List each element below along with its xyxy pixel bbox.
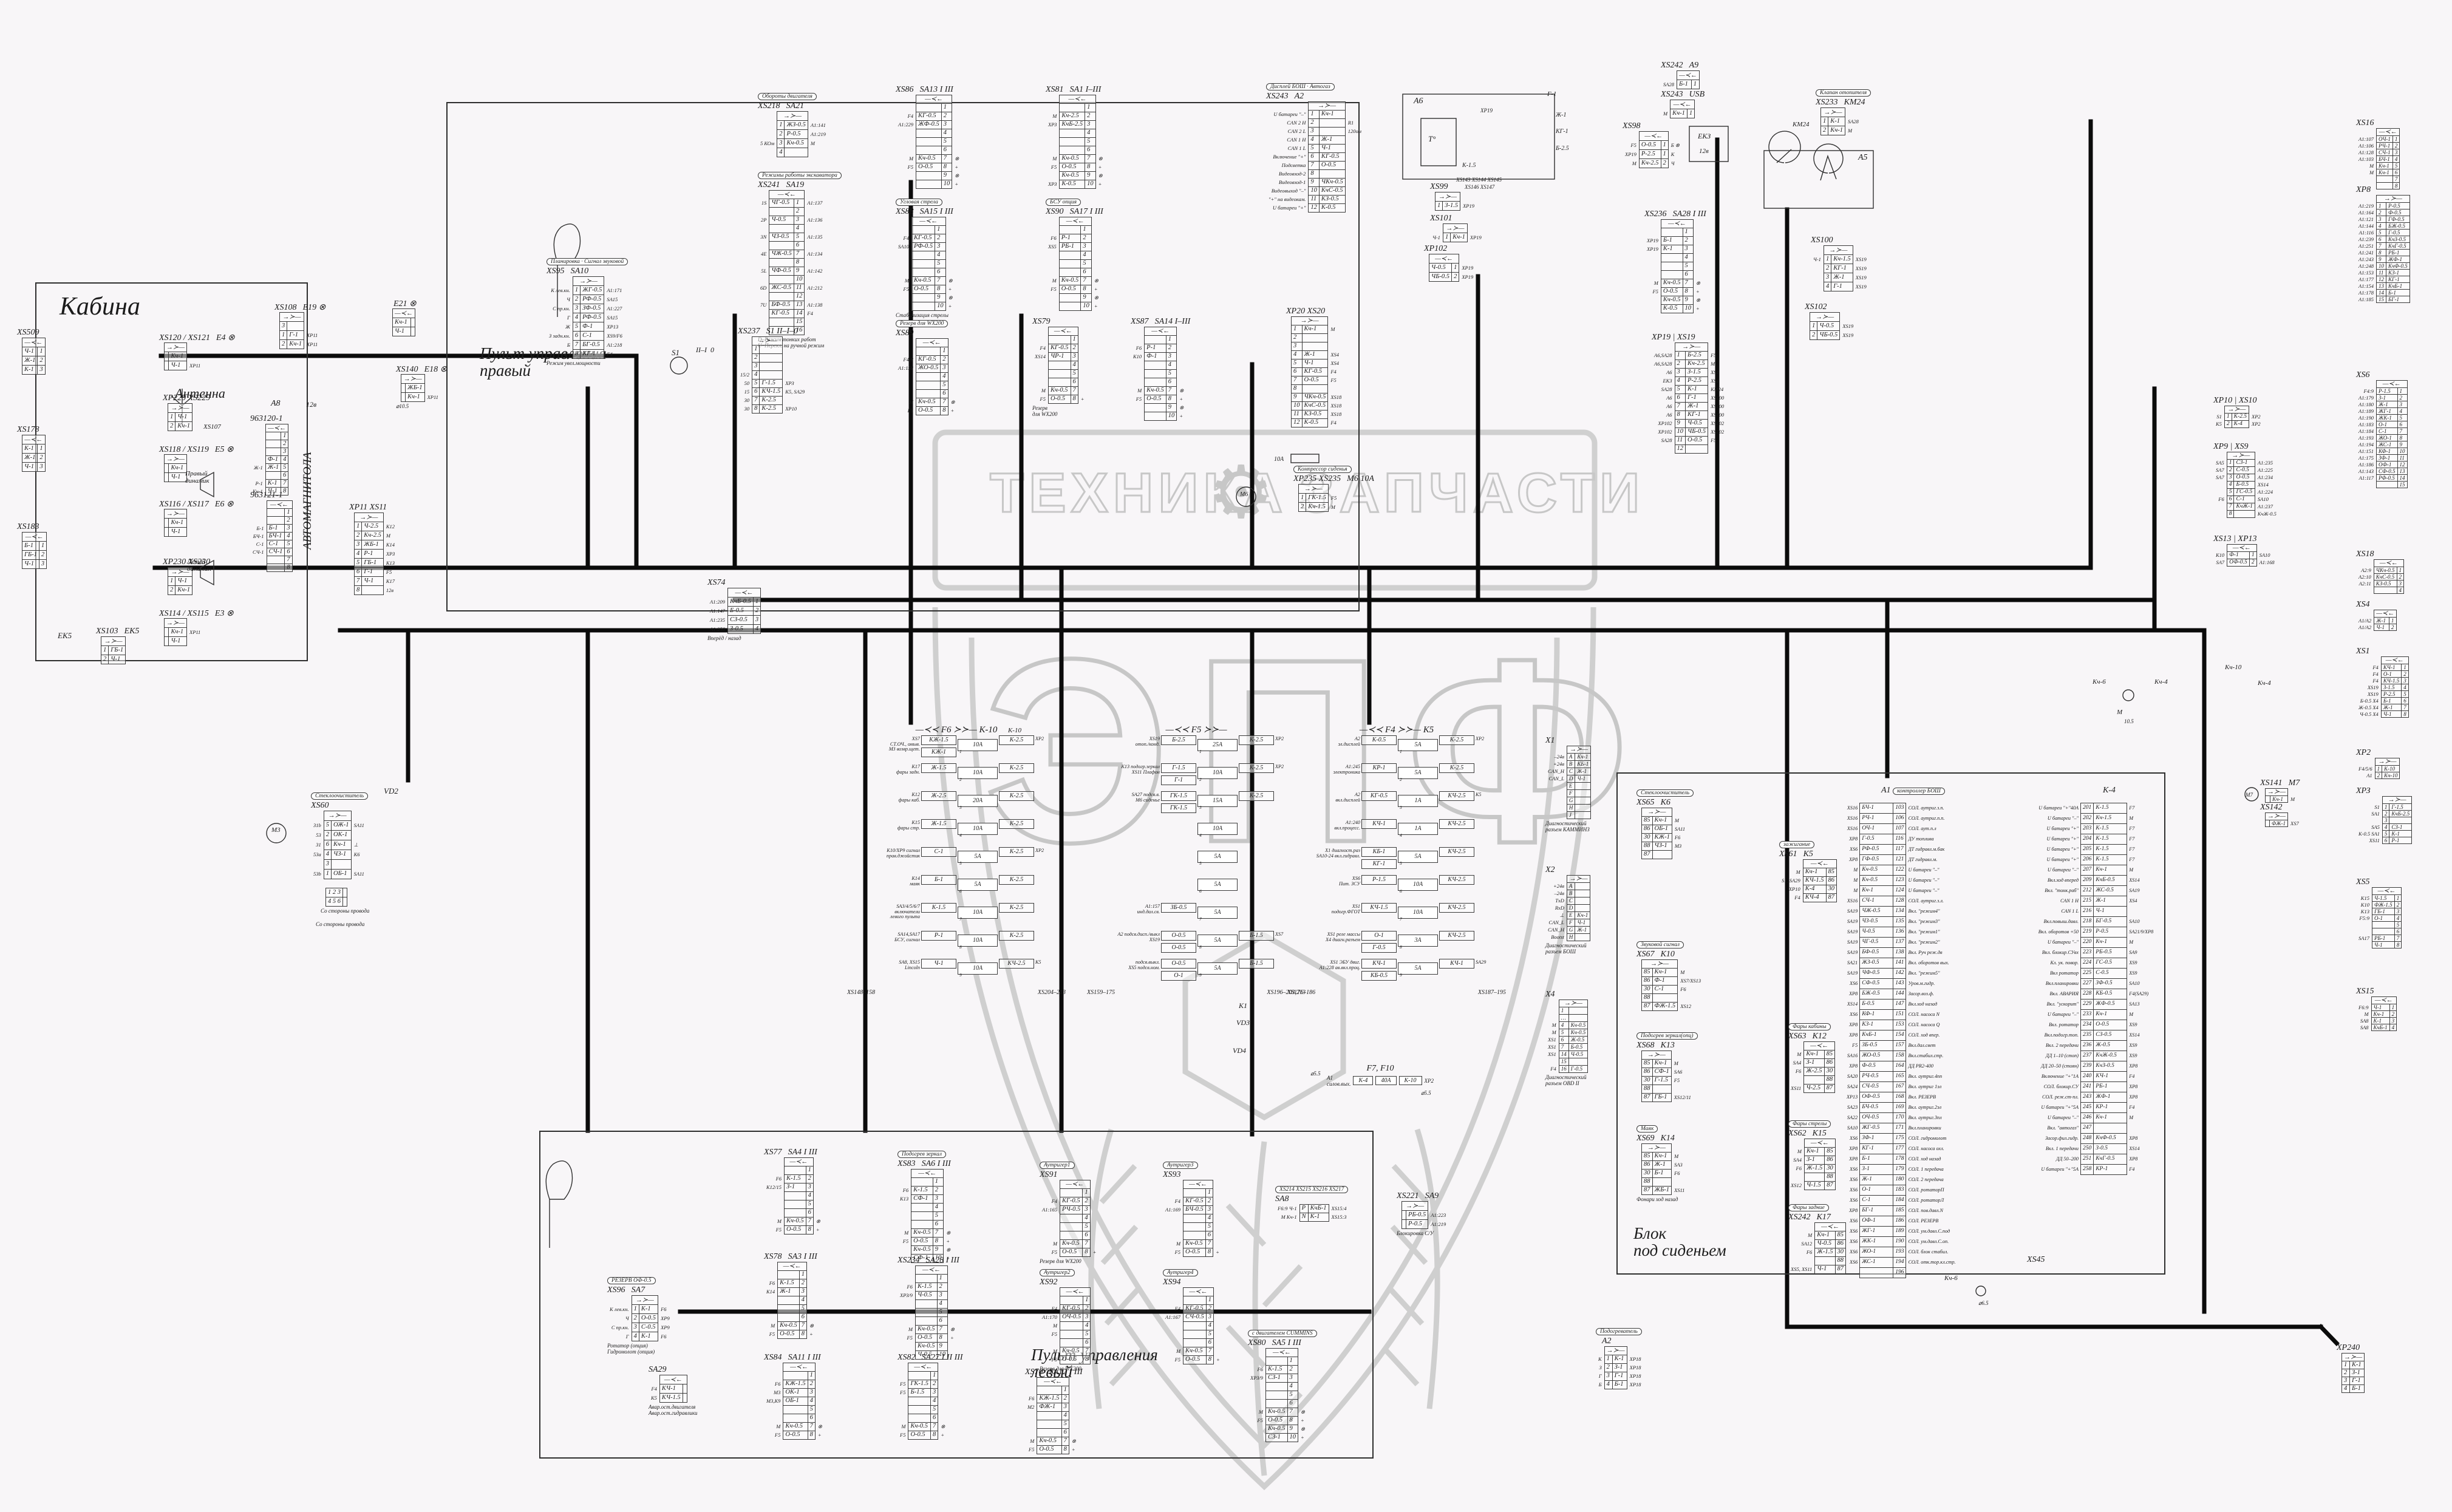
controller-pin-row: Включение "+"1А240КЧ-1F4 [2005,1072,2155,1082]
note-k13: Подогрев зеркал(опц) [1636,1032,1698,1040]
pin-row: МКч-185 [1788,1148,1841,1156]
pin-row: 7Ч-1К17 [349,577,397,586]
pin-row: Кч-0.59⊗ [1046,172,1105,180]
table-xs89: —≺←1F4:8КГ-0.52А1:158ЖО-0.53456МКч-0.57⊗… [896,338,958,415]
controller-pin-row: ХР8КчБ-1154СОЛ. ход впер. [1845,1030,1983,1041]
pin-row: 4 5 6 [321,897,352,907]
controller-pin-row: ХР8Г-0.5116ДУ топлива [1845,834,1983,845]
pin-row: А1:2439ЖФ-1 [2356,256,2415,263]
pin-row: МКч-0.57⊗ [1644,279,1703,288]
pin-row: А2:10КчС-0.52 [2356,574,2409,581]
title-xp102: ХР102 [1424,244,1476,254]
pin-row: "+" на видеокам.11КЗ-0.5 [1266,196,1364,204]
title-xp9: ХР9 | ХS9 [2213,442,2279,452]
device-heater: А2 [1602,1337,1612,1346]
title-xp20: ХР20 ХS20 [1286,307,1344,316]
pin-row: МКч-0.57⊗ [1131,387,1186,395]
header-arrow-sa21: →≻— [777,112,808,121]
controller-pin-row: Вкл.повыш.давл.218БГ-0.5SA10 [2005,917,2155,927]
pin-row: 2Кч-1М [1816,126,1861,135]
title-xs243-usb: XS243USB [1661,90,1704,100]
header-arrow-xs94: —≺← [1183,1288,1214,1296]
title-s1: XS237S1 II–I–0 [738,327,807,336]
fuse-panel-f5: —≺≺ F5 ≻≻—XS19 отоп./конд.Б-2.525А1К-2.5… [1087,724,1306,996]
pin-row: ХР19Б-12 [1644,237,1703,245]
pin-row: F4КЧ-1 [649,1384,692,1394]
connector-xs70: XS70SA12 I III—≺←1F6КЖ-1.52М2ФЖ-13456МКч… [1025,1367,1083,1454]
connector-x1: Х1→≻—–24вAКч-1+24вBКБ-1CAN_HCЖ-1CAN_LDЧ-… [1545,736,1596,833]
device-xs88: SA15 I III [920,207,953,216]
controller-pin-row: XS6ЖС-1194СОЛ. отк.тор.кл.стр. [1845,1258,1983,1268]
pin-row: 6 [1040,1339,1099,1347]
pin-row: МКч-0.57⊗ [1248,1408,1307,1417]
controller-pin-row: XS6РФ-0.5117ДТ гидравл.м.бак [1845,845,1983,855]
pin-row: 2 [738,354,807,363]
header-arrow-xs5: —≺← [2372,888,2401,895]
pin-row: 2Кч-1.5М [1293,503,1339,512]
pin-row: 1ГК-1.5F5 [1293,494,1339,503]
pin-row: Р-0.5А1:219 [1397,1220,1448,1229]
pin-row: ⊥EКч-1 [1545,912,1595,919]
header-arrow-xs70: —≺← [1037,1378,1069,1386]
connector-xs60-face: 1 2 34 5 6Со стороны провода [321,888,369,914]
pin-row: 86Ж-1SA3 [1636,1161,1687,1170]
pin-row: К14Ж-13 [764,1288,816,1296]
pin-row: Б-1Б-13 [250,525,298,533]
pin-row: 4Р-1ХРЗ [349,550,397,559]
fuse-f5-3: 15А3 [1197,795,1238,807]
pin-row: 2З-1 [2337,1369,2369,1377]
controller-left: XS16БЧ-1103СОЛ. аутриг.з.п.XS16РЧ-1106СО… [1845,803,1983,1278]
pin-row: ХРЗ/9Ч-0.53 [897,1292,957,1300]
title-sa8: SA8 [1275,1194,1349,1204]
header-arrow-sa19: —≺← [769,191,805,199]
pin-row: 6 [896,390,958,398]
table-xp20: →≻—1Кч-1М234Ж-1XS45Ч-1XS46КГ-0.5F47О-0.5… [1286,316,1344,427]
controller-pin-row: Вкл. ротатор234О-0.5XS9 [2005,1020,2155,1030]
pin-row: 5ГБ-1К13 [349,559,397,568]
controller-pin-row: ХР13ОФ-0.5168Вкл. РЕЗЕРВ [1845,1092,1983,1103]
pin-row: 1 [1131,336,1186,344]
controller-pin-row: U батареи "–"202Кч-1.5М [2005,814,2155,824]
pin-row: 4 [897,1300,957,1309]
table-xs100: →≻—Ч-11Кч-1.5XS192КГ-1XS193Ж-1XS194Г-1XS… [1811,245,1869,291]
pin-row: РБ-0.5А1:223 [1397,1211,1448,1220]
pin-row: 3NЧЗ-0.55А1:135 [758,233,825,242]
connector-xp102: ХР102—≺←Ч-0.51ХР19ЧБ-0.52ХР19 [1424,244,1476,282]
pin-row: 9⊗ [1131,404,1186,412]
controller-pin-row: Вкл. "автогаз"247 [2005,1123,2155,1134]
pin-row: А1:147Б-0.52 [707,607,766,616]
pin-row: 5 [897,1309,957,1317]
header-arrow-k6: →≻— [1642,808,1672,817]
pin-row: К5КЧ-1.5 [649,1394,692,1403]
fuse-f6-5: 5А5 [958,851,998,863]
connector-xs243-usb: XS243USB—≺←МКч-11 [1661,90,1704,118]
header-arrow-e4: →≻— [165,343,187,352]
title-xs88: XS88SA15 I III [896,207,955,217]
pin-row: SA8КчБ-14 [2356,1024,2402,1031]
pin-row: А1:151КФ-110 [2356,448,2413,455]
pin-row: 6 [1248,1400,1307,1408]
table-xs101: →≻—Ч-11Кч-1ХР19 [1430,223,1484,242]
title-xp10: ХР10 | ХS10 [2213,396,2263,406]
controller-pin-row: XS6О-1183СОЛ. ротаторП [1845,1185,1983,1196]
connector-sa9: XS221SA9→≻—РБ-0.5А1:223Р-0.5А1:219Блокир… [1397,1191,1448,1236]
pin-row: 6 [764,1313,816,1322]
connector-xs16: XS16—≺←А1:107ОЧ-11А1:106РЧ-12А1:128СЧ-13… [2356,118,2405,189]
pin-row: ФЖ-1XS7 [2260,820,2301,827]
pin-row: CAN 1 H4Ж-1 [1266,136,1364,145]
pin-row: 10+ [896,302,955,311]
foot-x4: Диагностический разъем OBD II [1545,1074,1593,1086]
table-sa7: →≻—К лев.кн.1К-1F6Ч2О-0.5ХР9С пр.кн.3С-0… [607,1295,672,1341]
connector-xs5: XS5—≺←К15Ч-1.51К10ФЖ-1.52К13ГБ-13F5:9О-1… [2356,877,2406,948]
pin-row: 5 [896,138,961,146]
pin-row: 1 [1025,1386,1078,1395]
pin-row: 9ЧКч-0.5XS18 [1286,393,1344,402]
fuse-f6-7: 10А7 [958,907,998,919]
table-xs91: —≺←1F4КГ-0.52А1:165РЧ-0.53456МКч-0.57F5О… [1040,1180,1098,1257]
pin-row: XS5РБ-13 [1046,243,1101,251]
pin-row: СЗ-110+ [1248,1434,1307,1442]
pin-row: 4 [758,225,825,233]
pin-row: F6Ж-1.530 [1788,1248,1851,1257]
title-xs82: XS82SA27 I II III [897,1353,963,1363]
label-кч-6: Кч-6 [2093,679,2106,686]
pin-row: CAN 2 H2R1 [1266,119,1364,128]
pin-row: Кч-1 [159,352,203,361]
device-a2-disp: А2 [1295,92,1304,101]
connector-a8-1: 963120-1—≺←123Ф-14Ж-1Ж-156Р-1К-17Кч-1Ч-1… [250,414,293,495]
pin-row: F5О-0.58+ [1163,1248,1222,1257]
controller-pin-row: XS6С-1184СОЛ. ротаторЛ [1845,1196,1983,1206]
pin-row: 7 [250,556,298,564]
note-sa21: Обороты двигателя [758,93,817,100]
pin-row: CAN_LFЧ-1 [1545,919,1595,927]
pin-row: Ч-13 [17,560,52,569]
controller-pin-row: XS6КФ-1151СОЛ. насоса N [1845,1010,1983,1020]
pin-row: Ч-0.5 Х4Ч-18 [2356,711,2414,718]
label-а5: А5 [1858,154,1868,163]
connector-e6: XS116 / XS117Е6 ⊗→≻—Кч-1Ч-1 [159,499,234,537]
pin-row: A6,SA282Кч-2.5М [1652,360,1726,369]
header-arrow-xp229: →≻— [168,404,192,413]
fuse-f4-2: 5А2 [1398,767,1438,779]
connector-xs18: XS18—≺←А2:9ЧКч-0.51А2:10КчС-0.52А2:11КЗ-… [2356,550,2409,594]
pin-row: 1 2 3 [321,888,352,897]
connector-k12: Фары кабиныXS63К12—≺←МКч-185SA4З-186F6Ж-… [1788,1020,1840,1093]
fuse-f4-5: 5А5 [1398,851,1438,863]
title-xs83: XS83SA6 I III [897,1159,953,1169]
pin-row: МКч-0.57 [1032,387,1087,395]
header-arrow-xs84: —≺← [783,1363,815,1372]
title-xs86: XS86SA13 I III [896,85,961,95]
pin-row: 6 [250,472,293,480]
header-arrow-sa28-heat: —≺← [1661,220,1693,228]
pin-row: F5О-0.58+ [764,1330,816,1339]
table-xp8: →≻—А1:2191Р-0.5А1:1642Ф-0.5А1:1213ГФ-0.5… [2356,195,2415,303]
pin-row: CAN 2 L3120ом [1266,128,1364,136]
fuse-row: XS7 СТ.ОЧ., омыв. М3 возвр.щет.КЖ-1.5КЖ-… [847,735,1066,763]
label-км24: КМ24 [1793,121,1809,129]
pin-row: 10+ [896,180,961,189]
pin-row: 316Кч-1⊥ [311,840,367,850]
connector-k10: Звуковой сигналXS67К10→≻—85Кч-1М86Ф-1XS7… [1636,938,1703,1011]
controller-pin-row: U батареи "–"207Кч-1М [2005,865,2155,876]
pin-row: 6 [1040,1231,1098,1240]
pin-row: МКч-0.57⊗ [897,1229,953,1238]
foot-xs74: Вперёд / назад [707,635,766,641]
pin-row: А1:106РЧ-12 [2356,143,2405,149]
table-xs102-b: →≻—1Ч-0.5XS192ЧБ-0.5XS19 [1805,312,1856,340]
header-arrow-xs178: —≺← [22,435,46,444]
pin-row: 85Кч-1М [1636,1060,1694,1068]
pin-row: МКч-0.57 [1163,1240,1222,1248]
pin-row: F6КЖ-1.52 [764,1380,825,1389]
pin-row: XS116Р-1 [2356,837,2417,844]
pin-row: Включение "+"6КГ-0.5 [1266,153,1364,162]
pin-row: 85Кч-1М [1636,969,1703,977]
controller-pin-row: Засор.фил.гидр.248КчФ-0.5ХР8 [2005,1134,2155,1144]
controller-pin-row: Вкл. 1 передачи250З-0.5XS14 [2005,1144,2155,1154]
pin-row: 6 [1644,271,1703,279]
pin-row: SA285К-1КМ24 [1652,386,1726,394]
label-м3: М3 [271,827,281,834]
pin-row: F4/5/61К-10 [2356,766,2405,772]
pin-row: 2Кч-1 [163,422,197,431]
table-sa19: —≺←1SЧГ-0.51А1:13722PЧ-0.53А1:13643NЧЗ-0… [758,190,825,335]
title-xp19: ХР19 | ХS19 [1652,333,1726,342]
pin-row: А1:15413КчБ-1 [2356,283,2415,290]
pin-row: XS5, XS11Ч-187 [1788,1265,1851,1274]
table-sa10: →≻—К лев.кн.1ЖГ-0.5А1:171Ч2РФ-0.5SA15С п… [547,276,625,359]
fuse-f6-2: 10А2 [958,767,998,779]
fuse-row: А2 вкл.дисплейКГ-0.51А3КЧ-2.5К5 [1287,791,1506,819]
pin-row: К15Ч-1.51 [2356,895,2406,902]
header-arrow-xs18: —≺← [2374,560,2403,567]
title-xs141: XS141М7 [2260,778,2300,788]
pin-row: 4 [1163,1214,1222,1223]
table-k14: →≻—85Кч-1М86Ж-1SA330Б-1F68887ЖБ-1XS11 [1636,1143,1687,1195]
controller-pin-row: ХР8БГ-1185СОЛ. пов.давл.N [1845,1206,1983,1216]
device-k13: К13 [1661,1041,1675,1050]
controller-pin-row: CAN 1 L216Ч-1 [2005,907,2155,917]
controller-pin-row: Вкл. АВАРИЯ228КБ-0.5F4(SA29) [2005,989,2155,999]
foot-x1: Диагностический разъем КАММИНЗ [1545,820,1596,833]
table-xs103: →≻—1ГБ-12Ч-1 [96,636,131,664]
fuse-f5-9: 5А9 [1197,962,1238,975]
pin-row: А1:169БЧ-0.53 [1163,1206,1222,1214]
fuse-row: А2 подсв.дисп./выкл XS19О-0.5О-0.55А8Б-1… [1087,931,1306,959]
pin-row: 1Ч-0.5XS19 [1805,322,1856,331]
label-к-1-5: К-1.5 [1462,163,1476,169]
header-arrow-k10: →≻— [1642,960,1678,969]
fuse-row: А1:245 электроникаКР-15А2К-2.5 [1287,763,1506,791]
pin-row: Кч-0.59⊗ [1248,1425,1307,1434]
fuse-row: К13 подогр.зеркал XS11 ПлафонГ-1.5Г-110А… [1087,763,1306,791]
pin-row: 6 [1046,146,1105,155]
pin-row: 3 [274,322,320,331]
pin-row: Кч-1ХР11 [396,393,441,402]
pin-row: К13СФ-13 [897,1195,953,1204]
fuse-f4-6: 10А6 [1398,879,1438,891]
table-sa29: —≺←F4КЧ-1К5КЧ-1.5 [649,1375,692,1403]
fuse-panel-title-f6: —≺≺ F6 ≻≻— К-10 [847,724,1066,735]
pin-row: 5 [1644,262,1703,271]
pin-row: XS19З-1.54 [2356,684,2414,691]
fuse-f4-7: 10А7 [1398,907,1438,919]
pin-row: Ж-1Ж-15 [250,464,293,472]
table-xs13: —≺←К10Ф-11SA10SA7ОФ-0.52А1:168 [2213,544,2277,567]
pin-row: F5О-0.51Б ⊗ [1623,141,1682,150]
header-arrow-xs77: —≺← [785,1158,814,1166]
device-s1: S1 II–I–0 [766,327,799,336]
pin-row: F4КГ-0.52 [1032,344,1087,353]
pin-row: 10+ [1131,412,1186,421]
pin-row: К-11 [17,444,50,454]
header-arrow-a2-disp: →≻— [1309,102,1345,111]
pin-row: F5О-0.58+ [1163,1356,1222,1364]
pin-row: А1:2517КчГ-0.5 [2356,243,2415,250]
pin-row: 5 [1032,370,1087,378]
title-x1: Х1 [1545,736,1596,746]
header-arrow-k17: —≺← [1815,1223,1846,1231]
table-k15: —≺←МКч-185SA4З-186F6Ж-1.53088XS12Ч-1.587 [1788,1139,1841,1190]
pin-row: 4 [1040,1214,1098,1223]
controller-pin-row: XS6ЗФ-1175СОЛ. гидромолот [1845,1134,1983,1144]
device-xs242-usb: А9 [1689,61,1699,70]
header-arrow-xs13: —≺← [2227,545,2256,552]
pin-row: 6 [2356,928,2406,935]
pin-row: 5 [897,1212,953,1221]
header-arrow-xp19: →≻— [1675,343,1708,352]
connector-xs92: Аутригер2XS92—≺←1F4КГ-0.52А1:170ОЧ-0.53М… [1040,1266,1099,1372]
header-arrow-xs183: —≺← [22,533,47,542]
controller-pin-row: XS6З-1179СОЛ. 1 передача [1845,1165,1983,1175]
table-xs15: —≺←F6:9Ч-11МКч-12SA8К-13SA8КчБ-14 [2356,996,2402,1031]
fuse-f6-6: 5А6 [958,879,998,891]
header-arrow-xs509: —≺← [22,338,46,347]
controller-pin-row: ХР8Б-1178СОЛ. ход назад [1845,1154,1983,1165]
note-xs60: Стеклоочиститель [311,792,368,800]
controller-pin-row: SA20РЧ-0.5165Вкл. аутриг.4пп [1845,1072,1983,1082]
label-левый-динамик: Левый динамик [187,559,211,573]
connector-xs509: XS509—≺←Ч-11Ж-12К-13 [17,328,50,375]
controller-pin-row: XS14Б-0.5147Вкл.ход назад [1845,999,1983,1010]
title-x2: Х2 [1545,865,1595,875]
header-arrow-xs234: —≺← [915,1266,947,1275]
pin-row: 5 [764,1305,816,1313]
pin-row: 2КГ-1XS19 [1811,264,1869,273]
controller-pin-row: SA16ЖО-0.5158Вкл.стабил.стр. [1845,1051,1983,1061]
title-a2-disp: XS243А2 [1266,92,1364,101]
pin-row: 4 [896,373,958,381]
note-k12: Фары кабины [1788,1023,1831,1030]
connector-xs13: ХS13 | ХР13—≺←К10Ф-11SA10SA7ОФ-0.52А1:16… [2213,534,2277,567]
pin-row: 12 [758,293,825,301]
pin-row: М4Кч-0.5 [1545,1022,1593,1029]
pin-row: 87ГБ-1XS12/11 [1636,1094,1694,1102]
fuse-f6-8: 10А8 [958,935,998,947]
table-xs242-usb: —≺←SA28Б-11 [1661,70,1704,89]
region-label-seat-block: Блок под сиденьем [1633,1225,1726,1259]
title-xs84: XS84SA11 I III [764,1353,825,1363]
pin-row: Ч-11Кч-1.5XS19 [1811,255,1869,264]
pin-row: Ч-1 [159,637,203,646]
pin-row: F6К-1.52 [764,1279,816,1288]
controller-pin-row: U батареи "+"5А258КР-1F4 [2005,1165,2155,1175]
pin-row: А2:9ЧКч-0.51 [2356,567,2409,574]
pin-row: 8КчЖ-0.5 [2213,511,2279,518]
pin-row: 1 [1046,104,1105,112]
pin-row: МКч-185 [1779,868,1842,877]
pin-row: 85Кч-1М [1636,817,1687,825]
connector-xs89: Резерв для WX200XS89—≺←1F4:8КГ-0.52А1:15… [896,317,958,415]
pin-row: Ч-11 [17,347,50,356]
pin-row: А1:17814Б-1 [2356,290,2415,296]
pin-row: 6 [1131,378,1186,387]
fuse-f4-9: 5А9 [1398,962,1438,975]
table-a8-2: —≺←12Б-1Б-13БЧ-1БЧ-14С-1С-15СЧ-1СЧ-1678 [250,500,298,572]
connector-xs15: XS15—≺←F6:9Ч-11МКч-12SA8К-13SA8КчБ-14 [2356,987,2402,1031]
pin-row: БЧ-1БЧ-14 [250,533,298,540]
connector-xs93: Аутригер3XS93—≺←1F4КГ-0.52А1:169БЧ-0.534… [1163,1159,1222,1257]
pin-row: 53b1ОБ-1SA11 [311,870,367,879]
pin-row: XS14ЧР-13 [1032,353,1087,361]
controller-pin-row: ДД 50–200251КчГ-0.5ХР8 [2005,1154,2155,1165]
pin-row: S11Г-1.5 [2356,804,2417,811]
controller-pin-row: Вкл.подогр.топ.235СЗ-0.5XS14 [2005,1030,2155,1041]
pin-row: CAN_HGЖ-1 [1545,927,1595,934]
header-arrow-xs16: —≺← [2377,129,2400,136]
pin-row: XS11Ч-2.587 [1788,1085,1840,1093]
header-arrow-xs90: —≺← [1059,217,1091,226]
header-arrow-s1: →≻— [752,337,783,346]
pin-row: 5 [896,260,955,268]
pin-row: 5 КОм3Кч-0.5М [758,139,828,148]
connector-xs4: XS4—≺←А1/А2Ж-11А1/А2Ч-12 [2356,600,2402,631]
table-xs60-face: 1 2 34 5 6 [321,888,352,907]
pin-row: SA8К-13 [2356,1018,2402,1024]
pin-row: F6:9Ч-11 [2356,1004,2402,1011]
pin-row: Р-1К-17 [250,480,293,488]
title-e6: XS116 / XS117Е6 ⊗ [159,499,234,509]
pin-row: G [1545,797,1596,805]
device-xs243-usb: USB [1689,90,1705,99]
title-a8-1: 963120-1 [250,414,293,424]
pin-row: А1:235СЗ-0.53 [707,616,766,625]
label-xs146-xs147: XS146 XS147 [1465,185,1494,190]
pin-row: 1 [764,1372,825,1380]
label-xs107: XS107 [203,424,221,431]
pin-row: F4КГ-0.52 [1040,1305,1099,1313]
fuse-f5-2: 10А2 [1197,767,1238,779]
controller-pin-row: SA19ЧФ-0.5142Вкл. "режим5" [1845,969,1983,979]
pin-row: 53a4ЧЗ-1К6 [311,850,367,860]
pin-row: 7 [2356,176,2405,183]
pin-row: 2Р-0.5А1:219 [758,130,828,139]
pin-row: … [1545,1015,1593,1022]
title-xs16: XS16 [2356,118,2405,128]
title-k15: XS62К15 [1788,1129,1841,1139]
label-кч-6: Кч-6 [1944,1275,1958,1282]
header-arrow-xp102: —≺← [1429,254,1459,264]
pin-row: М3,К9ОБ-14 [764,1397,825,1406]
pin-row: 4Ж-1XS4 [1286,351,1344,359]
device-sa9: SA9 [1425,1191,1439,1200]
fuse-f5-6: 5А6 [1197,879,1238,891]
